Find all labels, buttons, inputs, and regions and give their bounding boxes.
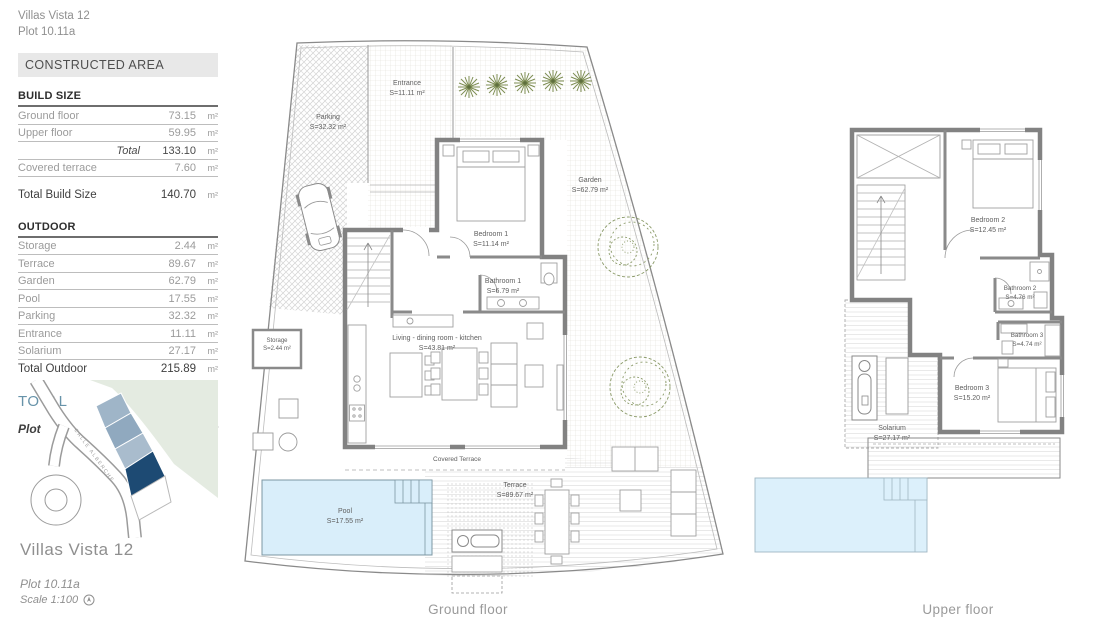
room-area: S=32.32 m² — [310, 124, 347, 131]
table-row: Parking 32.32 m² — [18, 308, 218, 326]
build-size-total-row: Total 133.10 m² — [18, 142, 218, 160]
scale-label: Scale 1:100 — [20, 594, 78, 606]
row-unit: m² — [196, 346, 218, 356]
row-value: 17.55 — [150, 293, 196, 305]
room-label: Parking — [316, 114, 340, 121]
row-label: Total — [18, 145, 150, 157]
site-map-drawing: CALLE ALBERCHE — [18, 380, 218, 538]
brand-title: Villas Vista 12 — [20, 540, 134, 560]
row-unit: m² — [196, 163, 218, 173]
row-value: 2.44 — [150, 240, 196, 252]
room-label: Storage — [266, 338, 288, 344]
room-area: S=11.11 m² — [389, 90, 425, 97]
room-area: S=62.79 m² — [572, 187, 609, 194]
constructed-area-header: CONSTRUCTED AREA — [18, 53, 218, 77]
room-label: Bathroom 3 — [1011, 332, 1044, 339]
row-unit: m² — [196, 259, 218, 269]
bed-bedroom2 — [962, 140, 1033, 208]
room-label: Solarium — [878, 425, 906, 432]
row-label: Garden — [18, 275, 150, 287]
row-unit: m² — [196, 276, 218, 286]
upper-floor-caption: Upper floor — [878, 602, 1038, 617]
upper-floor-plan: Bedroom 2 S=12.45 m² Bathroom 2 S=4.76 m… — [740, 100, 1110, 575]
north-arrow-icon — [83, 594, 95, 606]
upper-floor-drawing: Bedroom 2 S=12.45 m² Bathroom 2 S=4.76 m… — [740, 100, 1110, 570]
room-area: S=11.14 m² — [473, 241, 510, 248]
row-value: 27.17 — [150, 345, 196, 357]
row-unit: m² — [196, 364, 218, 374]
room-area: S=2.44 m² — [263, 346, 291, 352]
garden-objects — [253, 399, 298, 451]
row-label: Terrace — [18, 258, 150, 270]
room-label: Bedroom 1 — [474, 231, 508, 238]
table-row: Storage 2.44 m² — [18, 238, 218, 256]
total-build-size-row: Total Build Size 140.70 m² — [18, 186, 218, 203]
room-label: Bathroom 2 — [1004, 285, 1037, 292]
table-row: Solarium 27.17 m² — [18, 343, 218, 361]
row-label: Storage — [18, 240, 150, 252]
row-unit: m² — [196, 329, 218, 339]
ground-floor-caption: Ground floor — [388, 602, 548, 617]
room-label: Bedroom 3 — [955, 385, 989, 392]
row-unit: m² — [196, 190, 218, 200]
table-row: Entrance 11.11 m² — [18, 325, 218, 343]
room-label: Pool — [338, 508, 352, 515]
solarium-table — [886, 358, 908, 414]
dining-table — [431, 348, 488, 400]
bed-bedroom3 — [998, 359, 1056, 422]
row-value: 140.70 — [150, 189, 196, 201]
room-area: S=4.76 m² — [1005, 294, 1034, 301]
row-unit: m² — [196, 294, 218, 304]
row-label: Entrance — [18, 328, 150, 340]
document-title-line2: Plot 10.11a — [18, 24, 218, 40]
room-label: Covered Terrace — [433, 456, 481, 463]
row-value: 7.60 — [150, 162, 196, 174]
room-area: S=15.20 m² — [954, 395, 991, 402]
solarium-lounger — [852, 356, 877, 420]
summary-panel: Villas Vista 12 Plot 10.11a CONSTRUCTED … — [18, 8, 218, 436]
room-label: Terrace — [503, 482, 526, 489]
row-label: Parking — [18, 310, 150, 322]
row-unit: m² — [196, 146, 218, 156]
row-label: Total Outdoor — [18, 363, 150, 375]
table-row: Terrace 89.67 m² — [18, 255, 218, 273]
deck-dashed-area — [452, 576, 502, 593]
row-value: 133.10 — [150, 145, 196, 157]
outdoor-heading: OUTDOOR — [18, 219, 218, 238]
ground-floor-plan: Parking S=32.32 m² Entrance S=11.11 m² G… — [235, 35, 745, 600]
room-label: Bathroom 1 — [485, 278, 521, 285]
row-unit: m² — [196, 311, 218, 321]
row-value: 32.32 — [150, 310, 196, 322]
pool-below — [755, 478, 927, 552]
bed-bedroom1 — [443, 145, 539, 221]
row-value: 11.11 — [150, 328, 196, 340]
row-value: 59.95 — [150, 127, 196, 139]
row-label: Covered terrace — [18, 162, 150, 174]
table-row: Covered terrace 7.60 m² — [18, 160, 218, 178]
table-row: Ground floor 73.15 m² — [18, 107, 218, 125]
room-area: S=89.67 m² — [497, 492, 534, 499]
build-size-heading: BUILD SIZE — [18, 88, 218, 107]
room-area: S=12.45 m² — [970, 227, 1007, 234]
deck-table — [452, 556, 502, 572]
room-area: S=43.81 m² — [419, 345, 456, 352]
room-area: S=4.74 m² — [1012, 341, 1041, 348]
kitchen-island — [390, 353, 434, 397]
room-label: Living - dining room - kitchen — [392, 335, 482, 342]
row-label: Upper floor — [18, 127, 150, 139]
row-unit: m² — [196, 128, 218, 138]
room-label: Garden — [578, 177, 601, 184]
document-title-line1: Villas Vista 12 — [18, 8, 218, 24]
sun-lounger — [452, 530, 502, 552]
row-label: Pool — [18, 293, 150, 305]
row-value: 215.89 — [150, 363, 196, 375]
table-row: Garden 62.79 m² — [18, 273, 218, 291]
row-value: 73.15 — [150, 110, 196, 122]
row-label: Ground floor — [18, 110, 150, 122]
plot-note: Plot 10.11a — [20, 577, 80, 591]
row-unit: m² — [196, 241, 218, 251]
row-label: Solarium — [18, 345, 150, 357]
room-label: Entrance — [393, 80, 421, 87]
map-roundabout — [31, 475, 81, 525]
total-outdoor-row: Total Outdoor 215.89 m² — [18, 360, 218, 377]
room-area: S=17.55 m² — [327, 518, 364, 525]
document-title: Villas Vista 12 Plot 10.11a — [18, 8, 218, 40]
scale-note: Scale 1:100 — [20, 594, 95, 606]
ground-floor-drawing: Parking S=32.32 m² Entrance S=11.11 m² G… — [235, 35, 745, 595]
site-location-map: CALLE ALBERCHE — [18, 380, 218, 538]
room-area: S=27.17 m² — [874, 435, 911, 442]
row-unit: m² — [196, 111, 218, 121]
table-row: Upper floor 59.95 m² — [18, 125, 218, 143]
row-value: 62.79 — [150, 275, 196, 287]
row-label: Total Build Size — [18, 189, 150, 201]
room-area: S=6.79 m² — [487, 288, 520, 295]
room-label: Bedroom 2 — [971, 217, 1005, 224]
table-row: Pool 17.55 m² — [18, 290, 218, 308]
row-value: 89.67 — [150, 258, 196, 270]
